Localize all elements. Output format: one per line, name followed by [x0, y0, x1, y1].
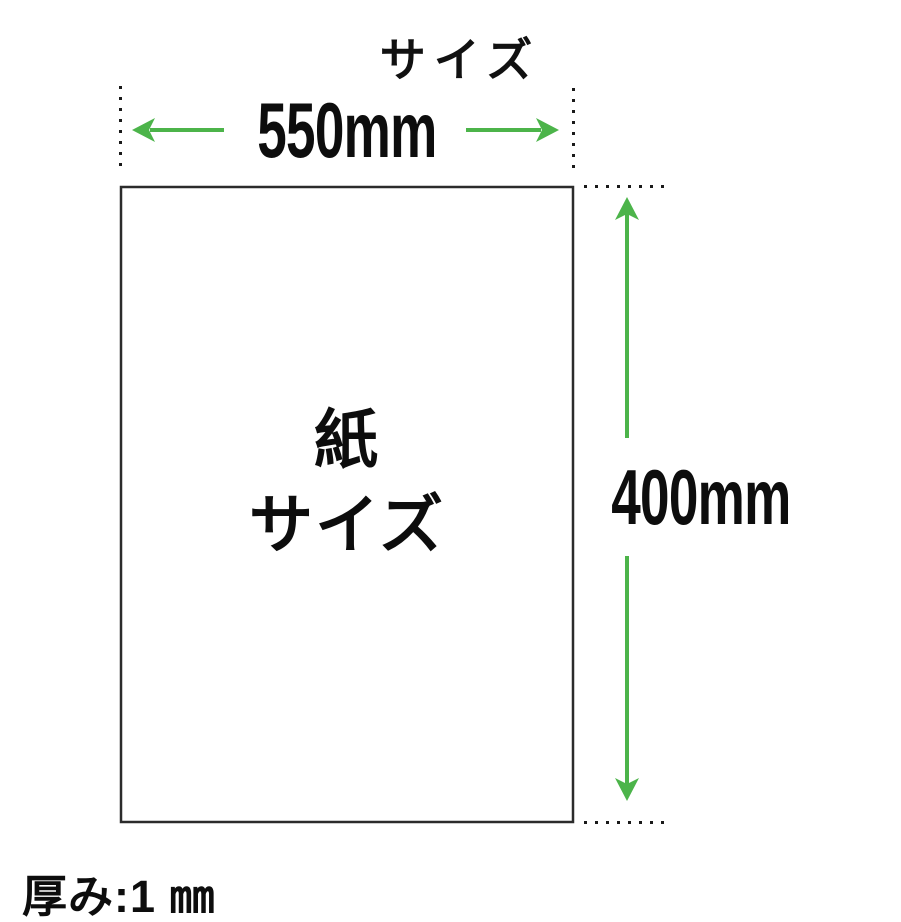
- paper-label-line1: 紙: [314, 398, 380, 482]
- width-dimension-label-box: 550mm: [120, 88, 574, 172]
- diagram-canvas: サイズ 550mm 紙 サイズ 400mm 厚み:1 ㎜: [0, 0, 901, 922]
- paper-label-line2: サイズ: [249, 483, 445, 567]
- paper-label: 紙 サイズ: [121, 187, 573, 822]
- diagram-title: サイズ: [330, 24, 590, 90]
- height-dimension-label-box: 400mm: [584, 438, 818, 556]
- width-dimension-label: 550mm: [257, 85, 436, 176]
- thickness-label: 厚み:1 ㎜: [22, 860, 216, 922]
- height-dimension-label: 400mm: [611, 452, 790, 543]
